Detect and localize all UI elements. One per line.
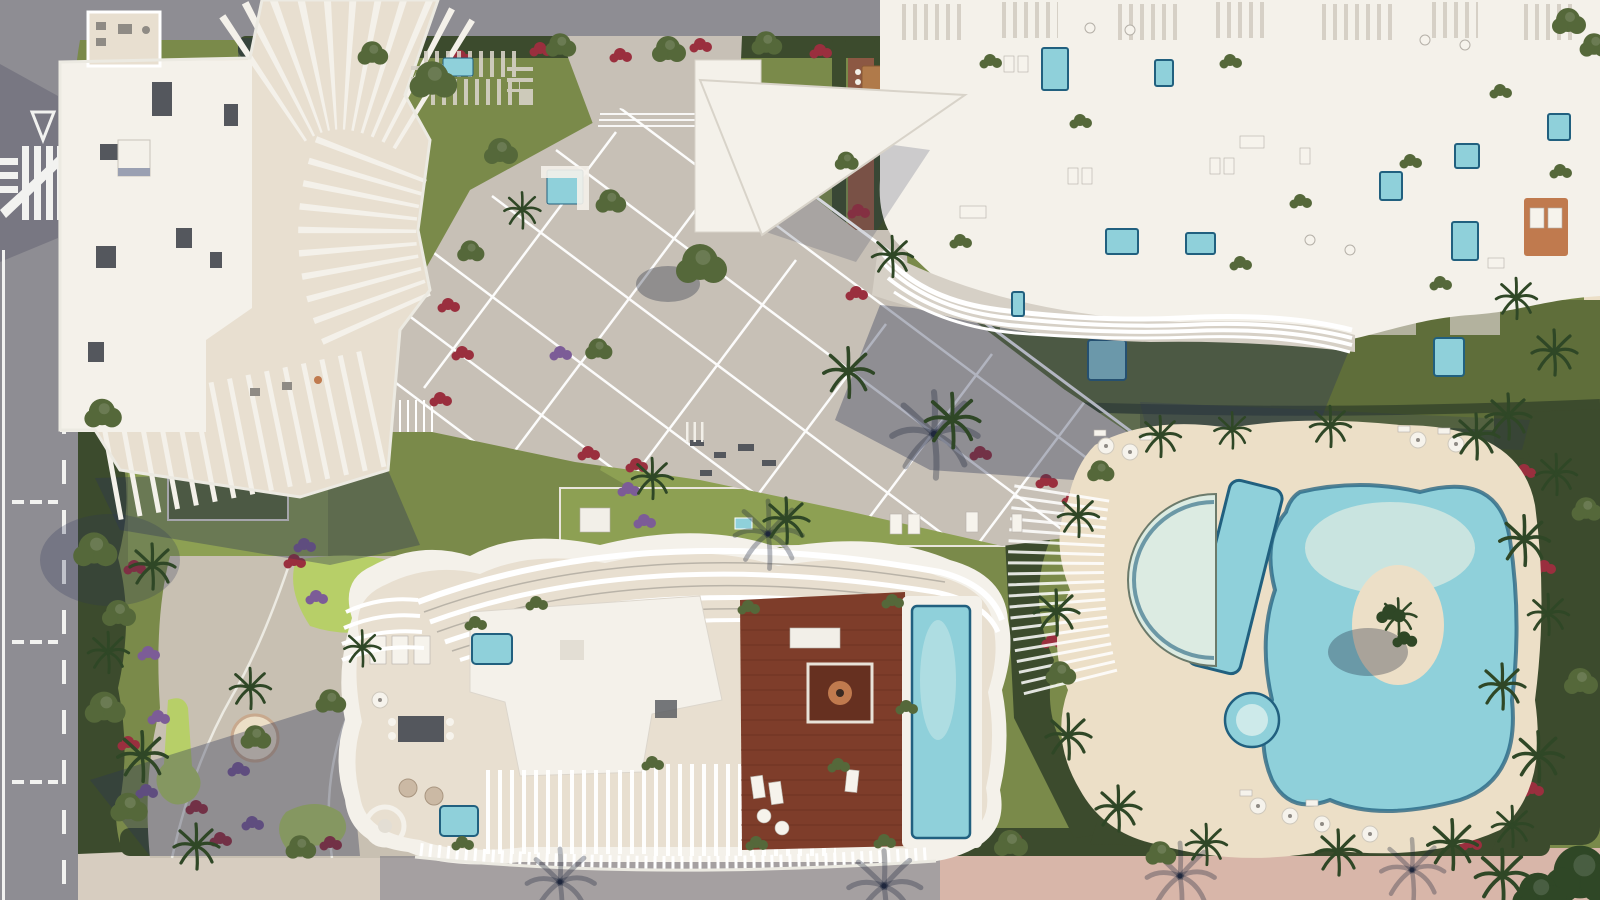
rooftop-plunge-pool bbox=[1548, 114, 1570, 140]
sunken-lounge bbox=[580, 508, 610, 532]
rooftop-wood-deck bbox=[740, 592, 908, 850]
south-roof-box bbox=[655, 700, 677, 718]
road-edge-line bbox=[2, 250, 5, 900]
rooftop-plunge-pool bbox=[1455, 144, 1479, 168]
kids-pool-center bbox=[1236, 704, 1268, 736]
parasol bbox=[1314, 816, 1330, 832]
spiral-ramp-core bbox=[378, 819, 392, 833]
rooftop-plunge-pool bbox=[1155, 60, 1173, 86]
dining-table bbox=[398, 716, 444, 742]
pouf bbox=[775, 821, 789, 835]
south-building bbox=[339, 533, 1011, 870]
parasol bbox=[1122, 444, 1138, 460]
island-shadow bbox=[1328, 628, 1408, 676]
parasol bbox=[1250, 798, 1266, 814]
parasol bbox=[1098, 438, 1114, 454]
rooftop-plunge-pool bbox=[1452, 222, 1478, 260]
plunge-pool bbox=[1434, 338, 1464, 376]
nest-chair bbox=[399, 779, 417, 797]
rooftop-plunge-pool bbox=[1106, 229, 1138, 254]
northeast-building bbox=[872, 0, 1600, 352]
rooftop-plunge-pool bbox=[1186, 233, 1215, 254]
parasol bbox=[372, 692, 388, 708]
aerial-render-stage bbox=[0, 0, 1600, 900]
rooftop-plunge-pool bbox=[1380, 172, 1402, 200]
nest-chair bbox=[425, 787, 443, 805]
table-tennis-table bbox=[735, 518, 752, 529]
pouf bbox=[757, 809, 771, 823]
fire-pit-lounge bbox=[808, 664, 872, 722]
south-plunge-pool-b bbox=[440, 806, 478, 836]
aerial-render-canvas bbox=[0, 0, 1600, 900]
lagoon-pool-complex bbox=[1056, 421, 1542, 858]
ne-roof-pergolas bbox=[902, 20, 1578, 22]
rooftop-plunge-pool bbox=[1012, 292, 1024, 316]
nw-roof-cube bbox=[118, 140, 150, 176]
south-plunge-pool-a bbox=[472, 634, 512, 664]
pool-shimmer bbox=[920, 620, 956, 740]
parasol bbox=[1282, 808, 1298, 824]
rooftop-plunge-pool bbox=[1042, 48, 1068, 90]
parasol bbox=[1410, 432, 1426, 448]
fire-pit-center bbox=[836, 689, 844, 697]
south-roof-box2 bbox=[560, 640, 584, 660]
rooftop-infinity-pool bbox=[902, 596, 982, 848]
parasol bbox=[1362, 826, 1378, 842]
deck-dining-table bbox=[790, 628, 840, 648]
